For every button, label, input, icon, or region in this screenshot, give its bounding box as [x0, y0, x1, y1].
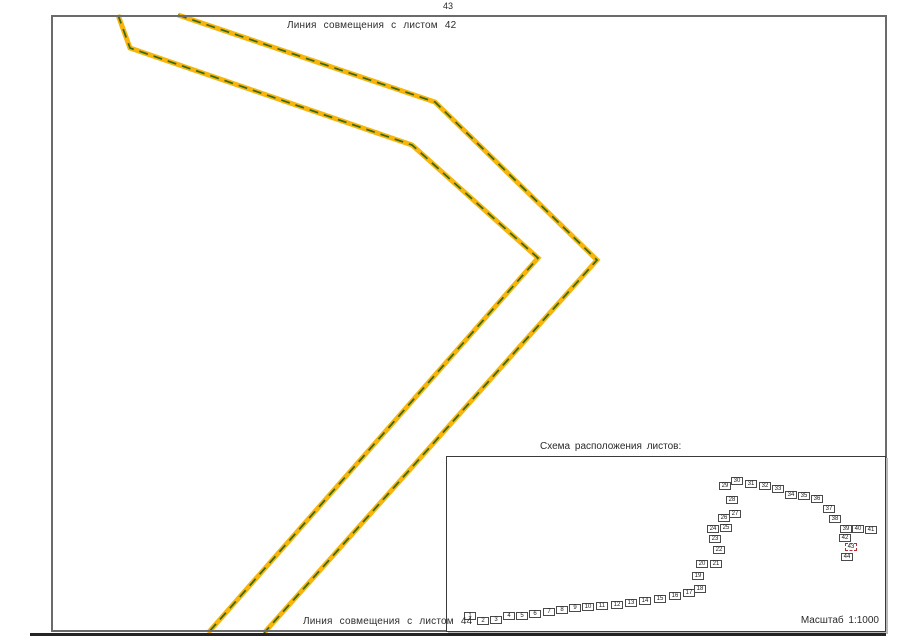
sheet-box: 4 [503, 612, 515, 620]
map-sheet-page: 43 Линия совмещения с листом 42 Линия со… [0, 0, 905, 640]
sheet-box: 41 [865, 526, 877, 534]
sheet-box: 9 [569, 604, 581, 612]
sheet-box: 24 [707, 525, 719, 533]
sheet-scheme-panel: Масштаб 1:1000 1234567891011121314151617… [446, 456, 886, 632]
sheet-box: 44 [841, 553, 853, 561]
sheet-box: 11 [596, 602, 608, 610]
sheet-box: 7 [543, 608, 555, 616]
sheet-box: 38 [829, 515, 841, 523]
sheet-box: 34 [785, 491, 797, 499]
match-line-caption-top: Линия совмещения с листом 42 [287, 20, 456, 31]
sheet-box: 21 [710, 560, 722, 568]
sheet-box: 27 [729, 510, 741, 518]
sheet-box: 42 [839, 534, 851, 542]
sheet-box: 23 [709, 535, 721, 543]
sheet-box: 36 [811, 495, 823, 503]
sheet-box: 18 [694, 585, 706, 593]
sheet-box: 13 [625, 599, 637, 607]
sheet-box: 5 [516, 612, 528, 620]
sheet-box: 12 [611, 601, 623, 609]
sheet-box: 16 [669, 592, 681, 600]
sheet-box: 31 [745, 480, 757, 488]
sheet-box: 28 [726, 496, 738, 504]
match-line-caption-bottom: Линия совмещения с листом 44 [303, 616, 472, 627]
sheet-box: 22 [713, 546, 725, 554]
sheet-box: 37 [823, 505, 835, 513]
sheet-box: 14 [639, 597, 651, 605]
scale-label: Масштаб 1:1000 [801, 615, 879, 626]
sheet-box: 35 [798, 492, 810, 500]
sheet-box: 32 [759, 482, 771, 490]
sheet-box: 40 [852, 525, 864, 533]
sheet-box: 6 [529, 610, 541, 618]
sheet-box: 29 [719, 482, 731, 490]
sheet-box: 39 [840, 525, 852, 533]
sheet-box: 30 [731, 477, 743, 485]
sheet-number-label: 43 [436, 1, 460, 11]
sheet-box: 20 [696, 560, 708, 568]
sheet-box: 33 [772, 485, 784, 493]
sheet-box: 3 [490, 616, 502, 624]
sheet-box: 25 [720, 524, 732, 532]
sheet-box: 8 [556, 606, 568, 614]
sheet-box: 19 [692, 572, 704, 580]
sheet-box: 2 [477, 617, 489, 625]
sheet-box: 10 [582, 603, 594, 611]
sheet-scheme-title: Схема расположения листов: [540, 441, 681, 452]
bottom-edge-bar [30, 633, 886, 636]
sheet-box-current: 43 [845, 543, 857, 551]
sheet-box: 15 [654, 595, 666, 603]
